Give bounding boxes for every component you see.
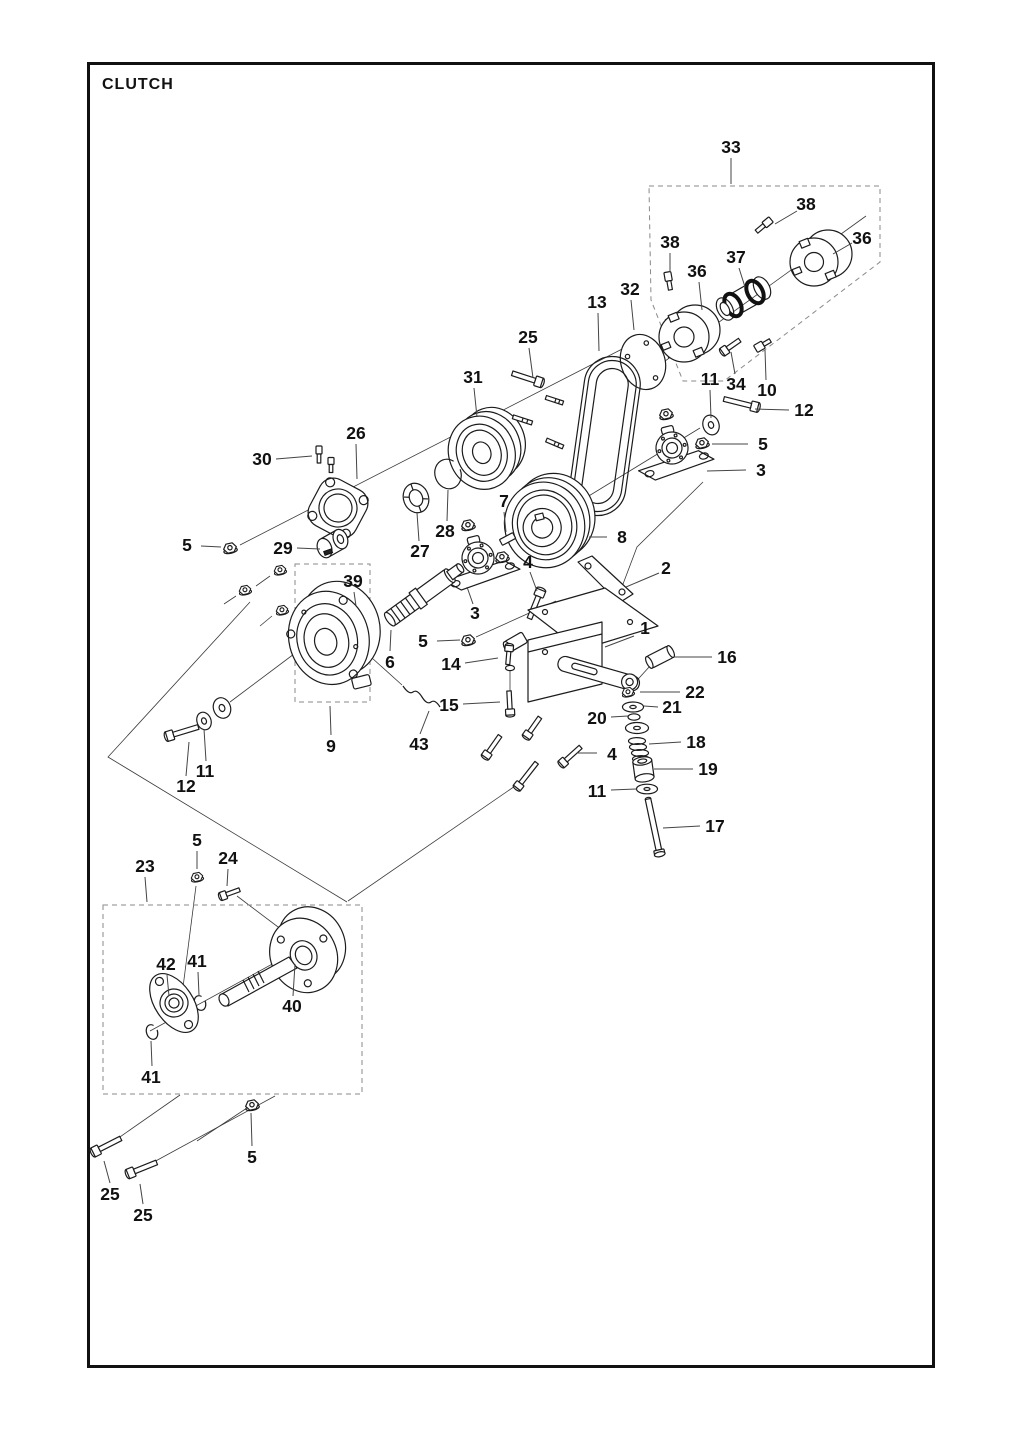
callout-25-54: 25 [100, 1184, 120, 1204]
leader-line-13-6 [598, 313, 599, 351]
callout-5-22: 5 [182, 535, 192, 555]
leader-line-24-48 [227, 869, 228, 886]
leader-line-5-22 [201, 546, 221, 547]
leader-line-9-39 [330, 706, 331, 735]
callout-39-24: 39 [343, 571, 363, 591]
leader-line-11-43 [204, 729, 206, 761]
leader-line-41-50 [198, 972, 199, 995]
leader-line-4-26 [530, 572, 537, 591]
leader-line-17-45 [663, 826, 700, 828]
leader-line-30-11 [276, 456, 312, 459]
callout-4-40: 4 [607, 744, 617, 764]
flange-nut-5-bottom [244, 1099, 259, 1112]
dashed-assembly-boxes [103, 186, 880, 1094]
leader-line-20-35 [611, 716, 628, 717]
callout-24-48: 24 [218, 848, 238, 868]
leader-line-41-52 [151, 1041, 152, 1066]
leader-line-5-29 [437, 640, 460, 641]
flange-nut-5 [222, 542, 237, 555]
callout-27-21: 27 [410, 541, 429, 561]
callout-38-2: 38 [796, 194, 816, 214]
bolt-12-left [163, 722, 200, 742]
callout-30-11: 30 [252, 449, 272, 469]
callout-4-26: 4 [523, 552, 533, 572]
washer-20 [628, 714, 640, 720]
callout-38-1: 38 [660, 232, 680, 252]
flange-nut [273, 565, 287, 576]
leader-line-37-5 [739, 268, 745, 287]
callout-5-16: 5 [758, 434, 768, 454]
leader-line-32-7 [631, 300, 634, 330]
leader-line-25-54 [104, 1161, 110, 1183]
callout-12-44: 12 [176, 776, 196, 796]
callout-5-53: 5 [247, 1147, 257, 1167]
leader-line-6-30 [390, 630, 391, 651]
bearing-27 [399, 480, 433, 517]
flange-nut [238, 585, 252, 596]
callout-34-13: 34 [726, 374, 746, 394]
callout-15-36: 15 [439, 695, 459, 715]
callout-8-19: 8 [617, 527, 627, 547]
callout-26-10: 26 [346, 423, 366, 443]
callout-40-51: 40 [282, 996, 302, 1016]
flange-nut-5-center [460, 634, 475, 647]
leader-line-11-42 [611, 789, 637, 790]
pulley-31 [437, 398, 538, 498]
flange-nut-5-right [694, 437, 709, 450]
callout-25-55: 25 [133, 1205, 153, 1225]
callout-19-41: 19 [698, 759, 718, 779]
callout-1-28: 1 [640, 618, 650, 638]
leader-line-38-2 [775, 211, 797, 224]
bolt-25-bottom-b [124, 1158, 159, 1180]
spring-43 [403, 686, 440, 707]
set-screw-38-left [664, 271, 674, 290]
snap-ring-41-lower [144, 1023, 159, 1041]
leader-line-2-25 [626, 573, 659, 587]
output-shaft-40 [217, 896, 361, 1008]
callout-10-14: 10 [757, 380, 777, 400]
bolt-14 [504, 643, 514, 665]
callout-25-8: 25 [518, 327, 538, 347]
callout-42-49: 42 [156, 954, 176, 974]
washer-under-14 [506, 665, 515, 670]
bolts-4-group [480, 715, 583, 792]
bolt-25-bottom-a [89, 1134, 123, 1158]
leader-line-3-17 [707, 470, 746, 471]
callout-33-0: 33 [721, 137, 741, 157]
leader-line-11-12 [710, 390, 711, 418]
callout-18-37: 18 [686, 732, 706, 752]
callout-3-17: 3 [756, 460, 766, 480]
callout-11-12: 11 [701, 369, 720, 389]
washer-11-left-a [210, 695, 233, 721]
set-screws-30 [316, 446, 334, 473]
leader-line-25-8 [529, 348, 533, 378]
electric-clutch-9 [277, 573, 394, 702]
jaw-coupling-hub-36-left [659, 305, 720, 362]
callout-11-43: 11 [196, 761, 215, 781]
bolt-24 [217, 886, 241, 901]
flange-nut [460, 519, 475, 532]
callout-17-45: 17 [705, 816, 724, 836]
callout-3-27: 3 [470, 603, 480, 623]
assembly-axis-lines [108, 216, 866, 1163]
socket-screw-10 [754, 337, 773, 352]
flange-nut [275, 605, 289, 616]
leader-line-21-34 [644, 706, 658, 707]
callout-14-31: 14 [441, 654, 461, 674]
bolt-12-right [723, 394, 762, 413]
callout-9-39: 9 [326, 736, 336, 756]
callout-21-34: 21 [662, 697, 682, 717]
callout-36-4: 36 [852, 228, 872, 248]
callout-5-29: 5 [418, 631, 428, 651]
shaft-6 [381, 559, 468, 630]
callout-6-30: 6 [385, 652, 395, 672]
callout-37-5: 37 [726, 247, 745, 267]
callout-2-25: 2 [661, 558, 671, 578]
tensioner-bracket-1 [502, 588, 658, 702]
leader-line-18-37 [649, 742, 681, 744]
flange-nut-5-mid [190, 872, 204, 883]
callout-22-33: 22 [685, 682, 705, 702]
callout-31-9: 31 [463, 367, 483, 387]
bushing-19 [632, 756, 654, 783]
leader-line-28-20 [447, 490, 448, 521]
callout-29-23: 29 [273, 538, 293, 558]
washer-11-center [637, 784, 658, 794]
leader-line-14-31 [465, 658, 498, 663]
leader-line-34-13 [731, 352, 735, 374]
callout-41-52: 41 [141, 1067, 161, 1087]
callout-11-42: 11 [588, 781, 607, 801]
set-screw-38-right [754, 217, 773, 235]
leader-line-27-21 [417, 513, 419, 541]
leader-line-12-15 [755, 409, 789, 410]
callout-28-20: 28 [435, 521, 455, 541]
leader-line-12-44 [186, 742, 189, 776]
bolt-17 [642, 796, 665, 857]
leader-line-15-36 [463, 702, 500, 704]
callout-16-32: 16 [717, 647, 737, 667]
callout-labels: 3338383636371332253126301134101253782827… [100, 137, 872, 1225]
leader-line-5-53 [251, 1113, 252, 1146]
callout-5-46: 5 [192, 830, 202, 850]
leader-line-3-27 [467, 587, 473, 604]
leader-line-25-55 [140, 1184, 143, 1204]
callout-12-15: 12 [794, 400, 814, 420]
pillow-block-bearing-3-right [630, 417, 716, 483]
callout-36-3: 36 [687, 261, 707, 281]
callout-32-7: 32 [620, 279, 640, 299]
callout-7-18: 7 [499, 491, 509, 511]
jaw-coupling-hub-36-right [790, 230, 852, 286]
leader-line-10-14 [765, 350, 766, 380]
leader-line-43-38 [420, 711, 429, 734]
callout-43-38: 43 [409, 734, 429, 754]
leader-line-23-47 [145, 877, 147, 902]
callout-41-50: 41 [187, 951, 207, 971]
clutch-exploded-diagram: 3338383636371332253126301134101253782827… [0, 0, 1024, 1435]
bolt-34 [718, 336, 742, 357]
bolt-25-top [511, 369, 546, 389]
bolt-15 [505, 691, 515, 717]
leader-line-29-23 [297, 548, 320, 549]
washer-large [626, 723, 649, 734]
flange-nut [658, 408, 673, 421]
callout-23-47: 23 [135, 856, 155, 876]
callout-13-6: 13 [587, 292, 607, 312]
washer-21 [623, 702, 644, 712]
callout-20-35: 20 [587, 708, 607, 728]
leader-line-26-10 [356, 444, 357, 479]
spacer-16 [644, 645, 676, 670]
